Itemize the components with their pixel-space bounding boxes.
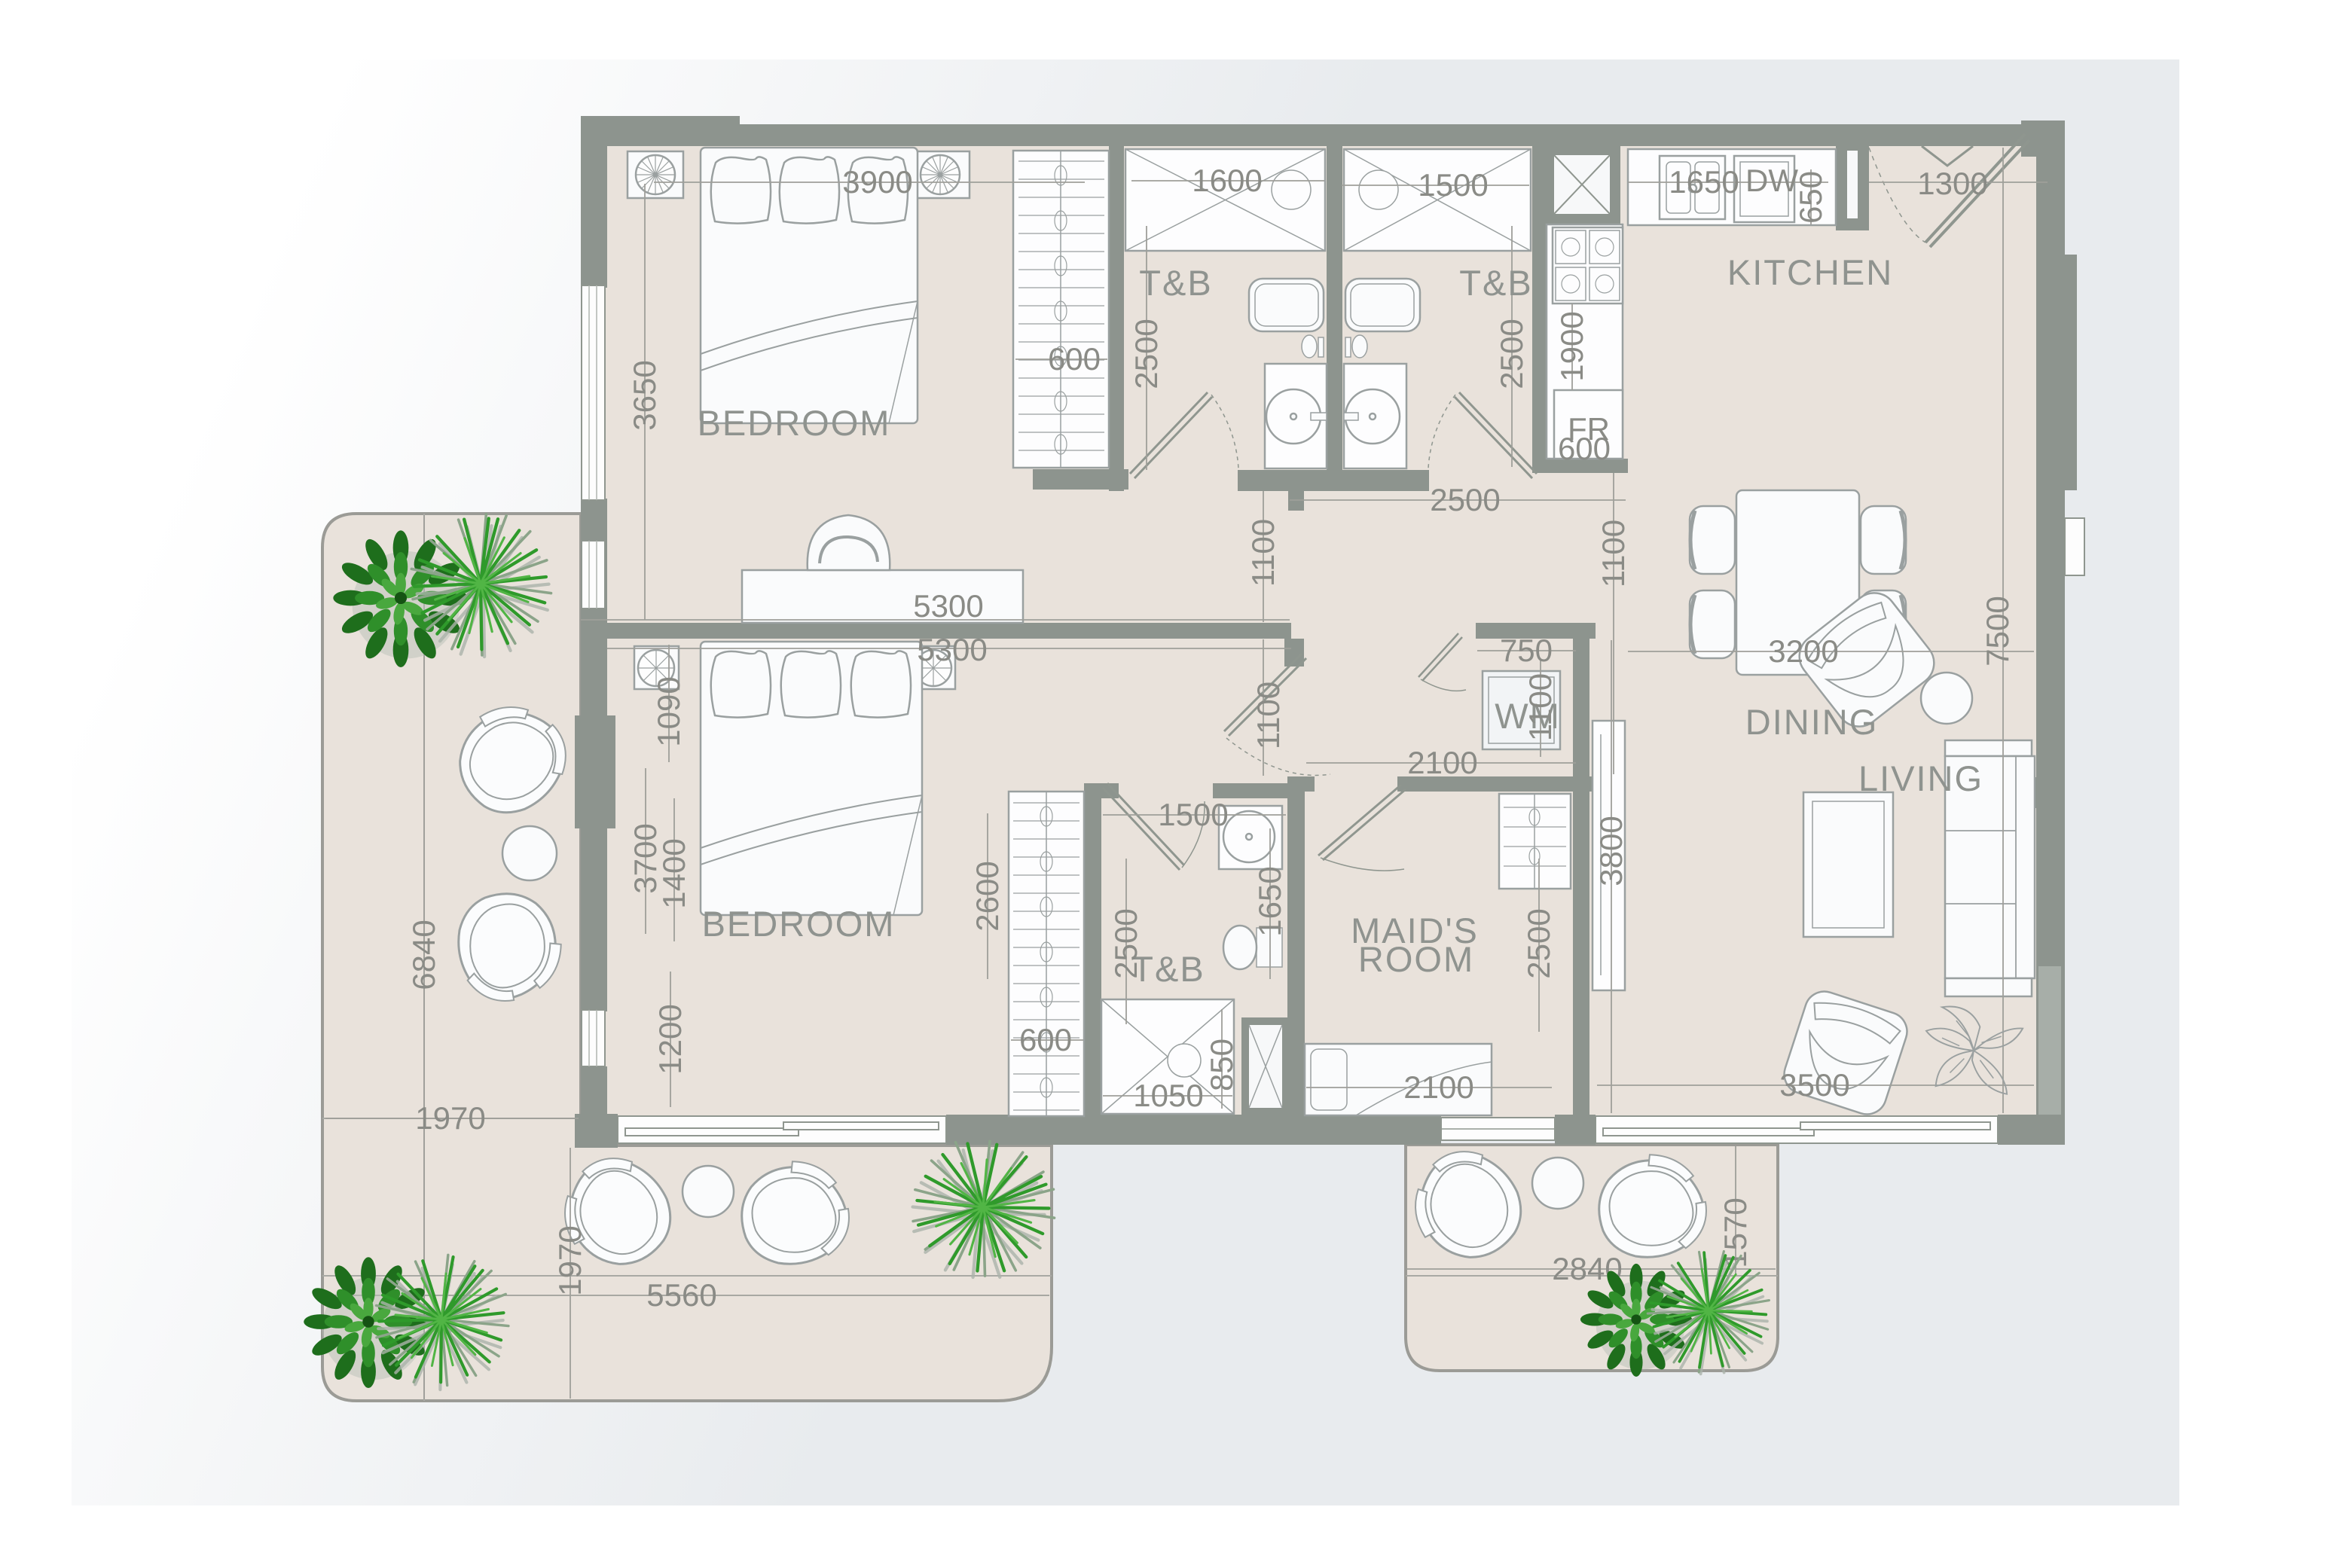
svg-text:1650: 1650 — [1669, 164, 1739, 200]
svg-text:2500: 2500 — [1494, 319, 1529, 389]
svg-text:T&B: T&B — [1459, 263, 1532, 303]
svg-text:1900: 1900 — [1554, 311, 1589, 381]
svg-text:1500: 1500 — [1158, 797, 1228, 832]
svg-text:1600: 1600 — [1192, 163, 1262, 198]
svg-text:5300: 5300 — [913, 588, 983, 624]
svg-text:650: 650 — [1793, 171, 1828, 224]
svg-text:DW: DW — [1745, 163, 1798, 198]
svg-text:5560: 5560 — [646, 1277, 716, 1313]
svg-text:2500: 2500 — [1430, 482, 1500, 517]
svg-text:LIVING: LIVING — [1858, 758, 1983, 798]
svg-text:3650: 3650 — [627, 360, 662, 430]
svg-text:1500: 1500 — [1418, 167, 1488, 203]
svg-text:3200: 3200 — [1768, 633, 1838, 669]
svg-text:2500: 2500 — [1128, 319, 1164, 389]
svg-text:6840: 6840 — [406, 920, 441, 990]
svg-text:600: 600 — [1558, 431, 1611, 466]
svg-text:BEDROOM: BEDROOM — [702, 904, 896, 944]
svg-text:2100: 2100 — [1407, 745, 1477, 780]
svg-text:2600: 2600 — [970, 861, 1005, 931]
svg-text:2100: 2100 — [1403, 1069, 1473, 1105]
svg-text:2500: 2500 — [1108, 908, 1144, 978]
svg-text:ROOM: ROOM — [1358, 939, 1474, 979]
svg-text:1970: 1970 — [415, 1100, 485, 1136]
svg-text:1100: 1100 — [1522, 673, 1558, 741]
svg-text:3900: 3900 — [842, 164, 912, 200]
svg-text:750: 750 — [1500, 633, 1553, 668]
svg-text:1090: 1090 — [651, 676, 686, 746]
svg-text:7500: 7500 — [1980, 596, 2015, 666]
svg-text:1100: 1100 — [1245, 519, 1281, 587]
svg-text:1300: 1300 — [1917, 166, 1987, 201]
svg-text:BEDROOM: BEDROOM — [698, 403, 891, 443]
svg-text:1100: 1100 — [1251, 682, 1286, 749]
svg-text:1400: 1400 — [656, 838, 692, 908]
svg-text:600: 600 — [1019, 1022, 1072, 1057]
svg-text:3500: 3500 — [1779, 1067, 1849, 1103]
svg-text:DINING: DINING — [1745, 702, 1879, 742]
svg-text:3800: 3800 — [1593, 816, 1629, 886]
svg-text:5300: 5300 — [917, 632, 987, 667]
svg-text:1650: 1650 — [1252, 866, 1287, 936]
svg-text:1100: 1100 — [1596, 520, 1631, 587]
svg-text:600: 600 — [1048, 341, 1101, 377]
svg-text:850: 850 — [1204, 1039, 1239, 1091]
svg-text:KITCHEN: KITCHEN — [1727, 252, 1893, 292]
svg-text:T&B: T&B — [1139, 263, 1212, 303]
svg-text:1970: 1970 — [552, 1225, 588, 1295]
svg-text:1200: 1200 — [652, 1004, 688, 1074]
svg-text:2500: 2500 — [1521, 908, 1556, 978]
svg-text:1050: 1050 — [1133, 1078, 1203, 1113]
